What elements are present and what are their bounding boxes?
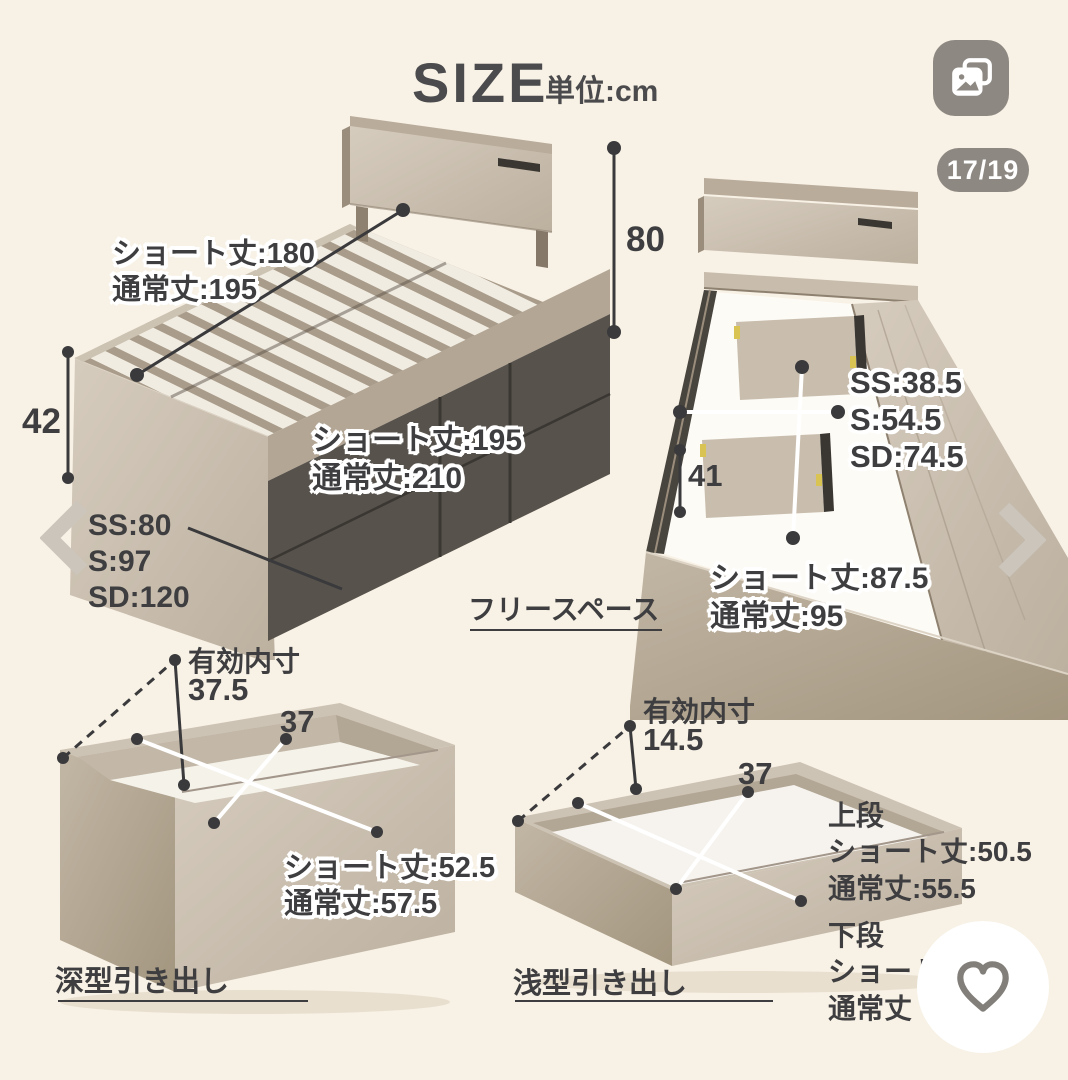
- label-line: SS:80: [88, 508, 190, 544]
- image-counter-badge: 17/19: [937, 148, 1029, 192]
- unit-label: 単位:cm: [545, 66, 658, 110]
- inner-depth-label: 41: [688, 458, 722, 494]
- deep-drawer-caption: 深型引き出し: [55, 958, 229, 1000]
- headboard-height-label: 80: [626, 220, 665, 260]
- gallery-button[interactable]: [933, 40, 1009, 116]
- label-line: 通常丈:55.5: [828, 871, 1032, 907]
- heart-icon: [950, 954, 1016, 1020]
- label-line: SD:120: [88, 580, 190, 616]
- label-line: ショート丈:180: [112, 236, 315, 272]
- label-line: 下段: [828, 918, 940, 954]
- inner-widths-label: SS:38.5 S:54.5 SD:74.5: [850, 364, 964, 476]
- slat-length-label: ショート丈:180 通常丈:195: [112, 236, 315, 309]
- shallow-caption-underline: [515, 1000, 773, 1002]
- shallow-drawer-caption: 浅型引き出し: [513, 960, 687, 1002]
- bed-widths-label: SS:80 S:97 SD:120: [88, 508, 190, 616]
- free-space-underline: [470, 629, 662, 631]
- frame-partition: [736, 316, 858, 400]
- upper-drawer-label: 上段 ショート丈:50.5 通常丈:55.5: [828, 798, 1032, 907]
- label-line: S:97: [88, 544, 190, 580]
- label-line: 通常丈:210: [312, 460, 522, 498]
- image-counter: 17/19: [947, 155, 1020, 186]
- label-line: 上段: [828, 798, 1032, 834]
- page-title: SIZE: [412, 50, 548, 115]
- frame-headboard: [704, 196, 918, 264]
- label-line: ショート丈:50.5: [828, 834, 1032, 870]
- deep-inner-width: 37: [280, 704, 314, 740]
- deep-length-label: ショート丈:52.5 通常丈:57.5: [284, 850, 495, 923]
- deep-inner-height: 37.5: [188, 672, 248, 708]
- chevron-right-icon[interactable]: [996, 500, 1046, 580]
- label-line: SD:74.5: [850, 438, 964, 475]
- label-line: SS:38.5: [850, 364, 964, 401]
- frame-height-label: 42: [22, 402, 61, 442]
- label-line: S:54.5: [850, 401, 964, 438]
- label-line: 通常丈:95: [710, 598, 928, 636]
- bed-frame-diagram: [620, 160, 1068, 720]
- chevron-left-icon[interactable]: [40, 498, 90, 578]
- favorite-button[interactable]: [917, 921, 1049, 1053]
- label-line: ショート丈:52.5: [284, 850, 495, 886]
- total-length-label: ショート丈:195 通常丈:210: [312, 422, 522, 497]
- free-space-length-label: ショート丈:87.5 通常丈:95: [710, 560, 928, 635]
- product-image-viewer: SIZE 単位:cm ショート丈:180 通常丈:195 80 42 SS:80…: [0, 0, 1068, 1080]
- label-line: 通常丈:195: [112, 272, 315, 308]
- shallow-inner-height: 14.5: [643, 722, 703, 758]
- deep-caption-underline: [58, 1000, 308, 1002]
- label-line: ショート丈:195: [312, 422, 522, 460]
- photo-stack-icon: [948, 55, 994, 101]
- label-line: ショート丈:87.5: [710, 560, 928, 598]
- shallow-inner-width: 37: [738, 756, 772, 792]
- label-line: 通常丈:57.5: [284, 886, 495, 922]
- free-space-label: フリースペース: [468, 588, 659, 628]
